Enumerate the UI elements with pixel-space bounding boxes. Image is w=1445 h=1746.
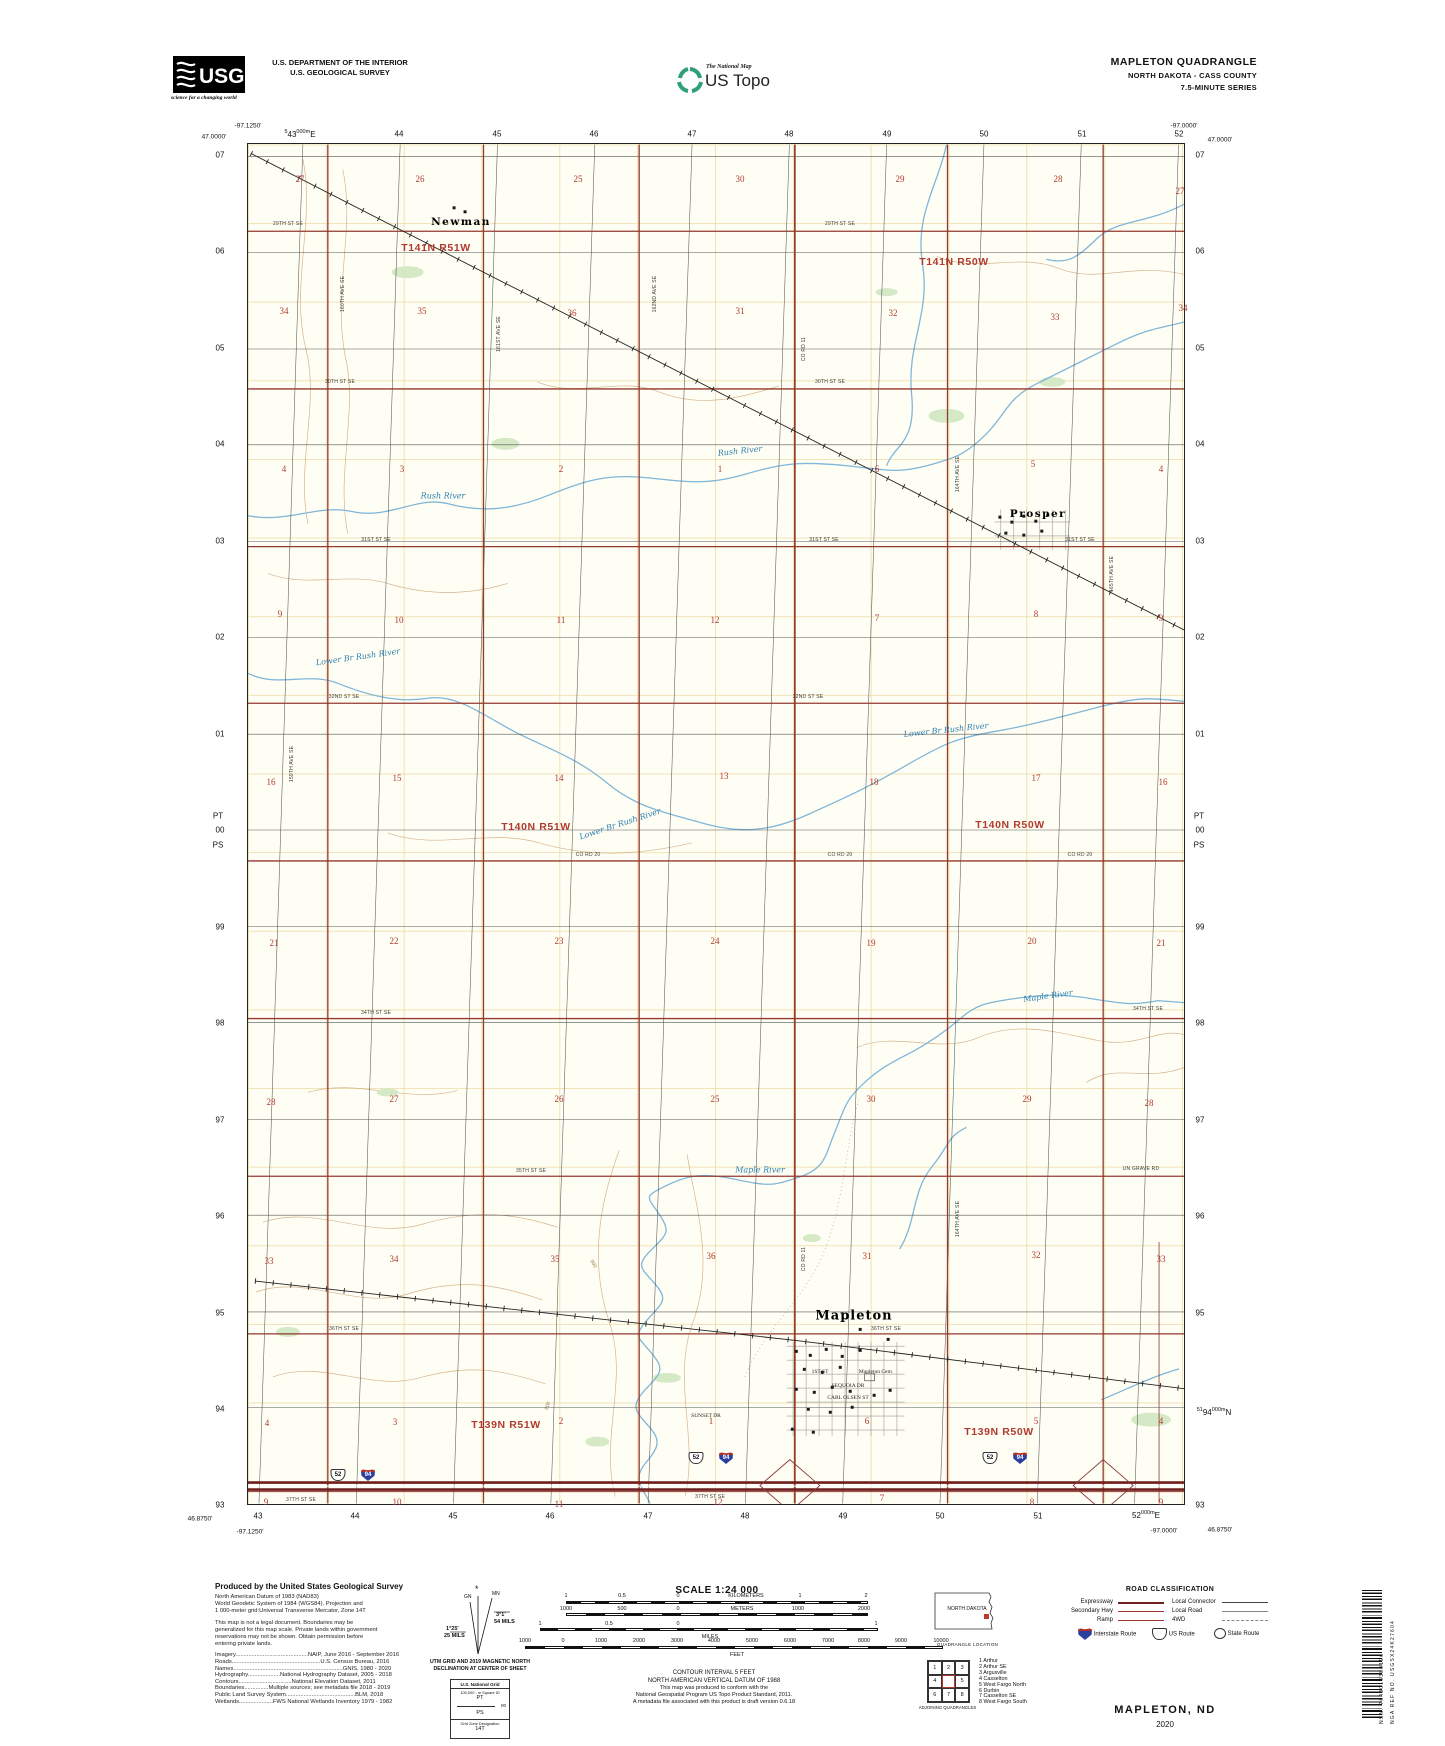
section-number: 28 <box>1054 174 1063 184</box>
grid-tick-label: 06 <box>1196 247 1205 256</box>
section-number: 8 <box>1030 1497 1035 1507</box>
township-label: T139N R50W <box>964 1426 1034 1438</box>
section-number: 4 <box>282 464 287 474</box>
grid-tick-label: 49 <box>883 130 892 139</box>
scalebar-number: FEET <box>730 1652 744 1658</box>
section-number: 29 <box>896 174 905 184</box>
scalebar-number: 6000 <box>784 1638 796 1644</box>
usng-title: U.S. National Grid <box>451 1680 509 1689</box>
usng-divider: 00 <box>451 1702 509 1710</box>
grid-tick-label: PT <box>1194 812 1204 821</box>
grid-tick-label: 06 <box>216 247 225 256</box>
expressway-line <box>1118 1602 1164 1604</box>
grid-tick-label: 52 <box>1175 130 1184 139</box>
interstate-legend: Interstate Route <box>1078 1628 1136 1640</box>
town-label: Mapleton <box>815 1309 892 1324</box>
road-label: 32ND ST SE <box>793 694 824 700</box>
section-number: 12 <box>711 615 720 625</box>
secondary-label: Secondary Hwy <box>1071 1608 1113 1614</box>
section-number: 34 <box>390 1254 399 1264</box>
road-label: CO RD 20 <box>1068 852 1093 858</box>
section-number: 30 <box>867 1094 876 1104</box>
section-number: 28 <box>267 1097 276 1107</box>
grid-tick-label: 47 <box>688 130 697 139</box>
section-number: 27 <box>296 174 305 184</box>
road-label: 29TH ST SE <box>825 221 855 227</box>
scalebar-number: 8000 <box>858 1638 870 1644</box>
nsn-number: NSN. 7643016380196 <box>1379 1653 1385 1724</box>
grid-tick-label: 96 <box>216 1212 225 1221</box>
road-label-vertical: 165TH AVE SE <box>1109 556 1115 592</box>
grid-tick-label: 02 <box>1196 633 1205 642</box>
road-label: 37TH ST SE <box>286 1497 316 1503</box>
section-number: 26 <box>416 174 425 184</box>
grid-tick-label: PS <box>1194 841 1205 850</box>
road-label: 29TH ST SE <box>273 221 303 227</box>
road-label: 31ST ST SE <box>809 537 839 543</box>
grid-tick-label: 98 <box>1196 1019 1205 1028</box>
note-line: A metadata file associated with this pro… <box>514 1699 914 1706</box>
local-road-line <box>1222 1611 1268 1612</box>
source-line: Public Land Survey System...............… <box>215 1692 487 1699</box>
section-number: 25 <box>711 1094 720 1104</box>
scalebar-feet <box>525 1646 943 1649</box>
feature-label: SEQUOIA DR <box>832 1383 865 1389</box>
section-number: 31 <box>863 1251 872 1261</box>
expressway-label: Expressway <box>1081 1599 1113 1605</box>
natmap-label: The National Map <box>706 64 752 70</box>
usng-square-top: PT <box>451 1695 509 1702</box>
us-route-legend: US Route <box>1152 1628 1195 1640</box>
grid-tick-label: 43 <box>254 1512 263 1521</box>
usng-box: U.S. National Grid 100,000 - m Square ID… <box>450 1679 510 1739</box>
scalebar-number: 1000 <box>560 1606 572 1612</box>
section-number: 30 <box>736 174 745 184</box>
corner-coordinate: 47.0000' <box>202 134 227 141</box>
section-number: 21 <box>1157 938 1166 948</box>
grid-tick-label: 05 <box>216 344 225 353</box>
state-route-circle-icon <box>1214 1628 1226 1639</box>
scalebar-number: 3000 <box>671 1638 683 1644</box>
section-number: 27 <box>390 1094 399 1104</box>
corner-coordinate: -97.1250' <box>235 123 262 130</box>
us-route-shield: 52 <box>331 1469 346 1481</box>
section-number: 32 <box>1032 1250 1041 1260</box>
utm-full-label: 543000mE <box>284 129 315 139</box>
section-number: 29 <box>1023 1094 1032 1104</box>
section-number: 7 <box>880 1493 885 1503</box>
road-label: CO RD 20 <box>576 852 601 858</box>
note-line: This map was produced to conform with th… <box>514 1685 914 1692</box>
section-number: 33 <box>265 1256 274 1266</box>
section-number: 35 <box>418 306 427 316</box>
township-label: T139N R51W <box>471 1419 541 1431</box>
scalebar-number: 1000 <box>595 1638 607 1644</box>
us-route-shield: 52 <box>689 1452 704 1464</box>
scalebar-number: 500 <box>617 1606 626 1612</box>
section-number: 15 <box>393 773 402 783</box>
adjoining-cell: 3 <box>955 1661 969 1675</box>
map-area: NewmanProsperMapletonT141N R51WT141N R50… <box>247 143 1185 1505</box>
grid-tick-label: 07 <box>216 151 225 160</box>
section-number: 4 <box>1159 464 1164 474</box>
state-route-legend: State Route <box>1214 1628 1259 1639</box>
corner-coordinate: -97.0000' <box>1151 1528 1178 1535</box>
declination-diagram: * GN MN 3°1' 54 MILS 1°25' 25 MILS <box>420 1582 540 1662</box>
road-label: 34TH ST SE <box>1133 1006 1163 1012</box>
section-number: 17 <box>1032 773 1041 783</box>
note-line: National Geospatial Program US Topo Prod… <box>514 1692 914 1699</box>
grid-tick-label: 50 <box>980 130 989 139</box>
section-number: 11 <box>557 615 566 625</box>
section-number: 16 <box>267 777 276 787</box>
road-label: 32ND ST SE <box>329 694 360 700</box>
contour-label: 900 <box>544 1401 552 1411</box>
quadrangle-heading: MAPLETON QUADRANGLE NORTH DAKOTA - CASS … <box>1035 56 1257 92</box>
adjoining-cell: 7 <box>942 1688 956 1702</box>
quadrangle-location-caption: QUADRANGLE LOCATION <box>920 1642 1015 1647</box>
road-label-vertical: 162ND AVE SE <box>652 276 658 313</box>
town-label: Newman <box>431 216 491 228</box>
scalebar-number: 1000 <box>792 1606 804 1612</box>
usng-zone: 14T <box>451 1726 509 1733</box>
adjoining-cell: 2 <box>942 1661 956 1675</box>
grid-tick-label: 49 <box>839 1512 848 1521</box>
interstate-label: Interstate Route <box>1094 1632 1137 1638</box>
svg-text:USGS: USGS <box>199 65 245 88</box>
river-label: Maple River <box>735 1166 785 1175</box>
section-number: 36 <box>568 308 577 318</box>
road-label-vertical: CO RD 11 <box>801 337 807 361</box>
nga-ref-number: NGA REF NO. USGSX24K27604 <box>1390 1620 1396 1724</box>
usgs-tagline: science for a changing world <box>171 95 281 101</box>
section-number: 5 <box>1034 1416 1039 1426</box>
section-number: 6 <box>875 464 880 474</box>
usng-square-bottom: PS <box>451 1710 509 1717</box>
road-classification-title: ROAD CLASSIFICATION <box>1090 1586 1250 1593</box>
section-number: 4 <box>265 1418 270 1428</box>
svg-text:54 MILS: 54 MILS <box>494 1619 515 1625</box>
grid-tick-label: 03 <box>1196 537 1205 546</box>
road-label-vertical: 161ST AVE SE <box>496 316 502 352</box>
us-route-label: US Route <box>1169 1632 1195 1638</box>
source-line: Wetlands.....................FWS Nationa… <box>215 1699 487 1706</box>
grid-tick-label: 98 <box>216 1019 225 1028</box>
note-line: CONTOUR INTERVAL 5 FEET <box>514 1669 914 1677</box>
town-label: Prosper <box>1010 508 1066 520</box>
section-number: 2 <box>559 464 564 474</box>
grid-tick-label: 01 <box>216 730 225 739</box>
grid-tick-label: 44 <box>351 1512 360 1521</box>
road-label: 34TH ST SE <box>361 1010 391 1016</box>
scalebar-number: 0.5 <box>605 1621 613 1627</box>
scalebar-number: 0 <box>676 1621 679 1627</box>
scalebar-miles <box>540 1628 878 1631</box>
sheet-title-block: MAPLETON, ND 2020 <box>1065 1704 1265 1729</box>
scalebar-number: 5000 <box>746 1638 758 1644</box>
scalebar-number: 7000 <box>822 1638 834 1644</box>
scalebar-number: 0 <box>676 1606 679 1612</box>
township-label: T141N R50W <box>919 256 989 268</box>
section-number: 33 <box>1051 312 1060 322</box>
corner-coordinate: 46.8750' <box>188 1516 213 1523</box>
section-number: 7 <box>875 613 880 623</box>
grid-tick-label: 04 <box>216 440 225 449</box>
interstate-shield: 94 <box>719 1452 733 1464</box>
state-name: NORTH DAKOTA <box>941 1606 993 1612</box>
feature-label: SUNSET DR <box>691 1413 721 1419</box>
road-label-vertical: 164TH AVE SE <box>955 456 961 492</box>
road-label-vertical: CO RD 11 <box>801 1247 807 1271</box>
grid-tick-label: PT <box>213 812 223 821</box>
national-map-logo: The National Map US Topo <box>676 62 796 98</box>
section-number: 1 <box>718 464 723 474</box>
river-label: Lower Br Rush River <box>903 721 988 739</box>
grid-tick-label: 48 <box>741 1512 750 1521</box>
us-topo-icon <box>676 66 704 94</box>
grid-tick-label: 48 <box>785 130 794 139</box>
section-number: 4 <box>1159 1416 1164 1426</box>
adjoining-cell: 8 <box>955 1688 969 1702</box>
road-label: UN GRAVE RD <box>1123 1166 1160 1172</box>
grid-tick-label: 04 <box>1196 440 1205 449</box>
svg-text:GN: GN <box>464 1594 472 1600</box>
grid-tick-label: 45 <box>493 130 502 139</box>
state-route-label: State Route <box>1228 1631 1260 1637</box>
adjoining-cell: 5 <box>955 1675 969 1689</box>
road-label-vertical: 164TH AVE SE <box>955 1201 961 1237</box>
section-number: 9 <box>278 609 283 619</box>
scalebar-number: 4000 <box>708 1638 720 1644</box>
section-number: 33 <box>1157 1254 1166 1264</box>
scalebar-number: 9000 <box>895 1638 907 1644</box>
section-number: 5 <box>1031 459 1036 469</box>
quadrangle-location-map <box>933 1589 1000 1635</box>
grid-tick-label: 94 <box>216 1405 225 1414</box>
grid-tick-label: 45 <box>449 1512 458 1521</box>
declination-caption-line1: UTM GRID AND 2019 MAGNETIC NORTH <box>385 1659 575 1666</box>
road-label: 37TH ST SE <box>695 1494 725 1500</box>
utm-full-label: 5194000mN <box>1197 1407 1232 1417</box>
road-label: 35TH ST SE <box>516 1168 546 1174</box>
section-number: 23 <box>555 936 564 946</box>
section-number: 27 <box>1176 186 1185 196</box>
section-number: 3 <box>393 1417 398 1427</box>
road-label: 30TH ST SE <box>325 379 355 385</box>
township-label: T141N R51W <box>401 242 471 254</box>
township-label: T140N R51W <box>501 821 571 833</box>
grid-tick-label: 95 <box>216 1309 225 1318</box>
road-label: 36TH ST SE <box>871 1326 901 1332</box>
road-label: 30TH ST SE <box>815 379 845 385</box>
ramp-label: Ramp <box>1097 1617 1113 1623</box>
road-class-row-2: Secondary Hwy Local Road <box>1040 1608 1270 1616</box>
grid-tick-label: 50 <box>936 1512 945 1521</box>
corner-coordinate: 47.0000' <box>1208 137 1233 144</box>
svg-text:3°1': 3°1' <box>496 1612 506 1618</box>
section-number: 21 <box>270 938 279 948</box>
quad-subtitle1: NORTH DAKOTA - CASS COUNTY <box>1035 71 1257 80</box>
usgs-topo-sheet: USGS science for a changing world U.S. D… <box>0 0 1445 1746</box>
river-label: Maple River <box>1023 988 1073 1004</box>
utm-full-label: 52000mE <box>1132 1510 1160 1520</box>
adjoining-quad-name: 8 West Fargo South <box>979 1700 1069 1706</box>
grid-tick-label: 44 <box>395 130 404 139</box>
river-label: Rush River <box>717 444 762 458</box>
section-number: 28 <box>1145 1098 1154 1108</box>
scalebar-number: METERS <box>731 1606 754 1612</box>
contour-notes: CONTOUR INTERVAL 5 FEETNORTH AMERICAN VE… <box>514 1669 914 1706</box>
section-number: 34 <box>280 306 289 316</box>
feature-label: 1ST ST <box>812 1369 829 1375</box>
adjoining-cell: 6 <box>928 1688 942 1702</box>
usng-zone-label: Grid Zone Designation <box>451 1719 509 1726</box>
connector-label: Local Connector <box>1172 1599 1216 1605</box>
scalebar-meters <box>566 1613 868 1616</box>
road-label: 36TH ST SE <box>329 1326 359 1332</box>
grid-tick-label: 47 <box>644 1512 653 1521</box>
township-label: T140N R50W <box>975 819 1045 831</box>
road-label-vertical: 159TH AVE SE <box>289 746 295 782</box>
section-number: 10 <box>395 615 404 625</box>
grid-tick-label: 00 <box>1196 826 1205 835</box>
local-road-label: Local Road <box>1172 1608 1202 1614</box>
grid-tick-label: 46 <box>546 1512 555 1521</box>
river-label: Lower Br Rush River <box>315 647 400 668</box>
corner-coordinate: 46.8750' <box>1208 1527 1233 1534</box>
adjoining-grid: 12345678 <box>927 1660 970 1703</box>
svg-text:1°25': 1°25' <box>446 1626 459 1632</box>
adjoining-names: 1 Arthur2 Arthur SE3 Argusville4 Casselt… <box>979 1659 1069 1706</box>
interstate-shield: 94 <box>361 1469 375 1481</box>
river-label: Lower Br Rush River <box>578 807 662 842</box>
map-labels-layer: NewmanProsperMapletonT141N R51WT141N R50… <box>248 144 1184 1504</box>
section-number: 14 <box>555 773 564 783</box>
section-number: 24 <box>711 936 720 946</box>
section-number: 2 <box>559 1416 564 1426</box>
grid-tick-label: 97 <box>216 1116 225 1125</box>
road-label: 31ST ST SE <box>361 537 391 543</box>
grid-tick-label: 99 <box>1196 923 1205 932</box>
road-class-row-1: Expressway Local Connector <box>1040 1599 1270 1607</box>
section-number: 13 <box>720 771 729 781</box>
svg-text:25 MILS: 25 MILS <box>444 1633 465 1639</box>
section-number: 20 <box>1028 936 1037 946</box>
section-number: 22 <box>390 936 399 946</box>
agency-line2: U.S. GEOLOGICAL SURVEY <box>255 68 425 78</box>
quad-subtitle2: 7.5-MINUTE SERIES <box>1035 83 1257 92</box>
usng-mid-value: 00 <box>501 1703 506 1708</box>
adjoining-cell: 1 <box>928 1661 942 1675</box>
grid-tick-label: 05 <box>1196 344 1205 353</box>
grid-tick-label: 03 <box>216 537 225 546</box>
interstate-shield: 94 <box>1013 1452 1027 1464</box>
section-number: 35 <box>551 1254 560 1264</box>
road-class-row-3: Ramp 4WD <box>1040 1617 1270 1625</box>
section-number: 11 <box>555 1499 564 1509</box>
section-number: 31 <box>736 306 745 316</box>
us-route-shield: 52 <box>983 1452 998 1464</box>
agency-line1: U.S. DEPARTMENT OF THE INTERIOR <box>255 58 425 68</box>
secondary-line <box>1118 1611 1164 1612</box>
agency-heading: U.S. DEPARTMENT OF THE INTERIOR U.S. GEO… <box>255 58 425 78</box>
section-number: 25 <box>574 174 583 184</box>
ustopo-label: US Topo <box>705 71 770 91</box>
road-label: 31ST ST SE <box>1065 537 1095 543</box>
source-line: Hydrography....................National … <box>215 1672 487 1679</box>
corner-coordinate: -97.0000' <box>1171 123 1198 130</box>
usgs-logo-art: USGS <box>173 56 245 93</box>
ramp-line <box>1118 1620 1164 1621</box>
river-label: Rush River <box>421 492 466 501</box>
source-line: Contours................................… <box>215 1679 487 1686</box>
grid-tick-label: 97 <box>1196 1116 1205 1125</box>
section-number: 36 <box>707 1251 716 1261</box>
section-number: 9 <box>1159 613 1164 623</box>
section-number: 26 <box>555 1094 564 1104</box>
sheet-year: 2020 <box>1065 1720 1265 1729</box>
scale-title: SCALE 1:24 000 <box>566 1585 868 1596</box>
section-number: 16 <box>1159 777 1168 787</box>
grid-tick-label: 93 <box>1196 1501 1205 1510</box>
grid-tick-label: 51 <box>1078 130 1087 139</box>
interstate-shield-icon <box>1078 1628 1092 1640</box>
scalebar-number: 2000 <box>858 1606 870 1612</box>
usgs-logo: USGS <box>173 56 245 93</box>
scalebar-number: 1 <box>874 1621 877 1627</box>
road-label: CO RD 20 <box>828 852 853 858</box>
grid-tick-label: 07 <box>1196 151 1205 160</box>
section-number: 10 <box>393 1497 402 1507</box>
section-number: 3 <box>400 464 405 474</box>
grid-tick-label: 96 <box>1196 1212 1205 1221</box>
feature-label: Mapleton Cem. <box>859 1369 893 1375</box>
feature-label: CARL OLSEN ST <box>827 1395 868 1401</box>
svg-text:MN: MN <box>492 1591 500 1597</box>
adjoining-cell-center <box>942 1675 956 1689</box>
corner-coordinate: -97.1250' <box>237 1529 264 1536</box>
scalebar-number: 2000 <box>633 1638 645 1644</box>
contour-label: 900 <box>588 1259 597 1269</box>
section-number: 9 <box>264 1497 269 1507</box>
note-line: NORTH AMERICAN VERTICAL DATUM OF 1988 <box>514 1677 914 1685</box>
grid-tick-label: 01 <box>1196 730 1205 739</box>
section-number: 6 <box>865 1416 870 1426</box>
source-line: Boundaries...............Multiple source… <box>215 1685 487 1692</box>
sheet-name: MAPLETON, ND <box>1065 1704 1265 1716</box>
section-number: 18 <box>870 777 879 787</box>
section-number: 9 <box>1159 1497 1164 1507</box>
grid-tick-label: PS <box>213 841 224 850</box>
adjoining-cell: 4 <box>928 1675 942 1689</box>
grid-tick-label: 99 <box>216 923 225 932</box>
us-route-shield-icon <box>1152 1628 1167 1640</box>
adjoining-caption: ADJOINING QUADRANGLES <box>905 1705 990 1710</box>
section-number: 34 <box>1179 303 1188 313</box>
connector-line <box>1222 1602 1268 1603</box>
grid-tick-label: 51 <box>1034 1512 1043 1521</box>
section-number: 32 <box>889 308 898 318</box>
grid-tick-label: 93 <box>216 1501 225 1510</box>
grid-tick-label: 46 <box>590 130 599 139</box>
4wd-line <box>1222 1620 1268 1621</box>
scalebar-kilometers <box>566 1601 868 1604</box>
grid-tick-label: 95 <box>1196 1309 1205 1318</box>
grid-tick-label: 00 <box>216 826 225 835</box>
quad-title: MAPLETON QUADRANGLE <box>1035 56 1257 68</box>
4wd-label: 4WD <box>1172 1617 1185 1623</box>
road-label-vertical: 160TH AVE SE <box>340 276 346 312</box>
